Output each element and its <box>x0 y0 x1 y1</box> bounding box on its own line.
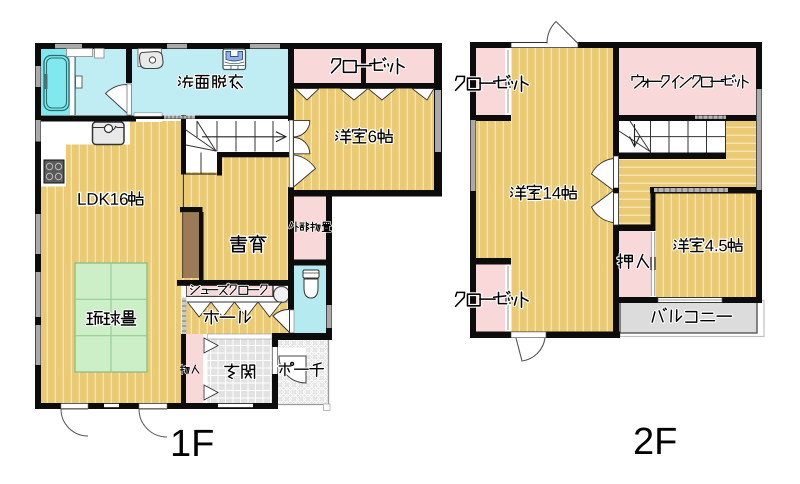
svg-text:2F: 2F <box>633 421 677 463</box>
svg-text:4.5: 4.5 <box>705 237 728 255</box>
svg-text:6: 6 <box>368 127 377 146</box>
svg-text:14: 14 <box>543 184 562 203</box>
svg-text:1F: 1F <box>170 423 214 465</box>
svg-text:LDK16: LDK16 <box>77 190 128 209</box>
